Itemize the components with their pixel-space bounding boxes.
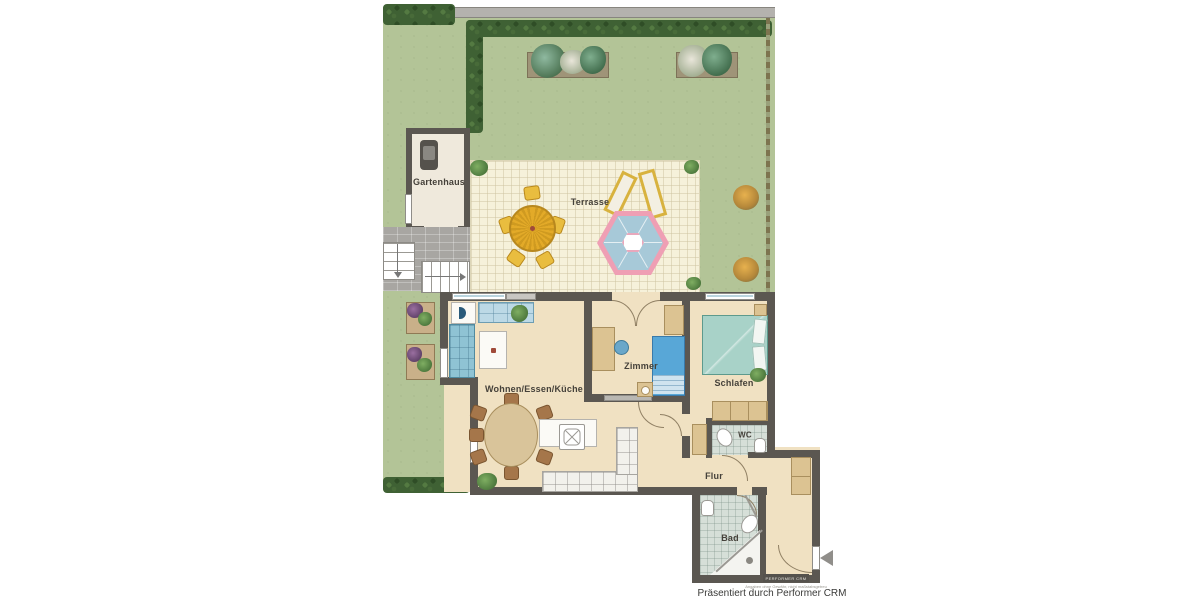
cabinet [664, 305, 684, 335]
entrance-door [812, 546, 820, 570]
room-label-zimmer: Zimmer [624, 361, 658, 371]
room-label-gartenhaus: Gartenhaus [413, 177, 465, 187]
desk [592, 327, 615, 371]
bush-icon [733, 257, 759, 282]
room-label-schlafen: Schlafen [714, 378, 753, 388]
floor-plan: Gartenhaus [0, 0, 1200, 600]
hedge-vertical [466, 20, 483, 133]
window-glass [454, 295, 504, 297]
stairs-arrow-head [394, 272, 402, 278]
wall [767, 292, 775, 458]
dining-chair [469, 428, 484, 442]
shower-head-icon [746, 557, 753, 564]
sofa [449, 324, 475, 378]
bad-toilet-icon [701, 500, 714, 516]
hedge-top-left [383, 4, 455, 25]
entry-arrow-icon [820, 550, 833, 566]
window-glass [707, 295, 753, 297]
stairs-arrow-icon [397, 244, 398, 272]
desk-chair [614, 340, 629, 355]
door-opening [630, 402, 638, 428]
fence-top [450, 7, 775, 18]
room-label-wohnen: Wohnen/Essen/Küche [485, 384, 583, 394]
dining-chair [504, 466, 519, 480]
single-bed-foot [653, 375, 684, 394]
gartenhaus-door [405, 194, 412, 224]
stairs-arrow-head [460, 273, 466, 281]
window [440, 348, 448, 378]
wall [682, 436, 690, 458]
small-shelf [754, 304, 767, 316]
wall [812, 450, 820, 546]
room-label-wc: WC [738, 431, 752, 440]
watermark-bar: PERFORMER CRM [763, 574, 809, 582]
wall [692, 487, 700, 583]
fence-right [766, 18, 770, 292]
wall [584, 292, 592, 402]
sliding-door [506, 293, 536, 300]
room-label-flur: Flur [705, 471, 723, 481]
flur-cabinet [791, 457, 811, 495]
footer-credit: Präsentiert durch Performer CRM [698, 588, 847, 599]
french-door-opening [612, 292, 660, 301]
lawn-mower-handle [423, 146, 435, 160]
nightstand-lamp-icon [641, 386, 650, 395]
coffee-table-decor [491, 348, 496, 353]
bush-icon [733, 185, 759, 210]
garden-chair [523, 185, 541, 201]
hedge-row-top [466, 20, 772, 37]
room-label-terrasse: Terrasse [571, 197, 609, 207]
kitchen-counter [616, 427, 638, 475]
wall [682, 402, 690, 414]
wardrobe [712, 401, 768, 421]
hall-cabinet [692, 424, 707, 455]
stove-icon [559, 424, 585, 450]
dining-table [484, 403, 538, 467]
room-label-bad: Bad [721, 533, 739, 543]
wc-toilet-icon [754, 438, 766, 453]
garden-table-center [530, 226, 535, 231]
stairs-arrow-icon [425, 276, 461, 277]
bed-pillow [752, 318, 768, 344]
